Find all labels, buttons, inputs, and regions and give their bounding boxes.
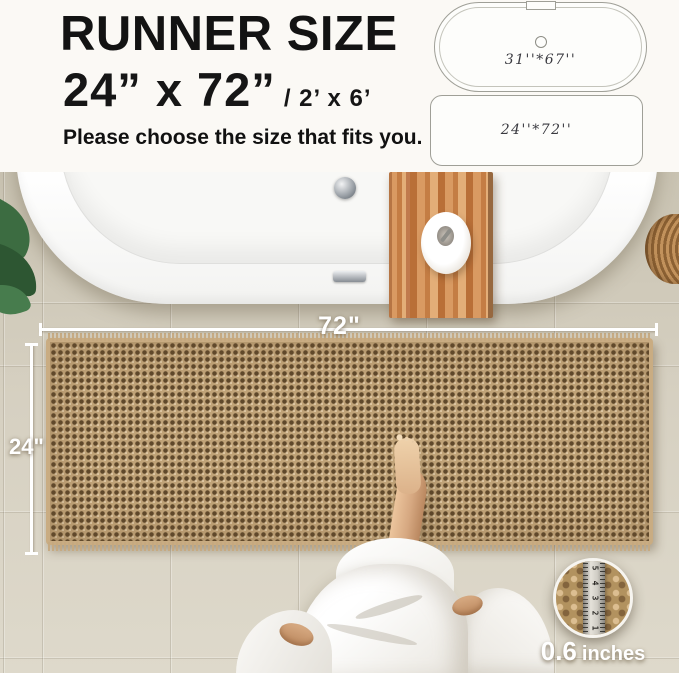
size-heading: 24” x 72”/ 2’ x 6’: [63, 62, 372, 117]
runner-size-label: 24''*72'': [431, 122, 642, 138]
toilet-paper-roll: [421, 212, 471, 274]
bathtub-size-label: 31''*67'': [435, 52, 646, 68]
ruler-number: 4: [590, 581, 598, 586]
ruler-number: 1: [590, 626, 598, 631]
product-size-image: RUNNER SIZE 24” x 72”/ 2’ x 6’ Please ch…: [0, 0, 679, 673]
ruler-number: 2: [590, 611, 598, 616]
chrome-drain-knob-icon: [334, 177, 356, 199]
width-dimension-label: 72": [0, 312, 679, 341]
ruler-numbers: 5 4 3 2 1: [583, 559, 605, 637]
ruler-number: 3: [590, 596, 598, 601]
bathtub-outline-diagram: 31''*67'': [434, 2, 647, 92]
bathroom-photo: 72" 24" 5 4 3 2 1 0.6inches: [0, 172, 679, 673]
ruler-number: 5: [590, 566, 598, 571]
size-main-text: 24” x 72”: [63, 63, 276, 116]
chrome-lever-icon: [333, 271, 366, 282]
person-foot: [394, 437, 422, 494]
drain-hole-icon: [535, 36, 547, 48]
size-alt-text: / 2’ x 6’: [284, 85, 372, 112]
bath-runner-rug: [46, 338, 653, 545]
faucet-notch-icon: [526, 1, 556, 10]
thickness-caption: 0.6inches: [535, 636, 651, 667]
thickness-value: 0.6: [541, 636, 577, 666]
height-dimension-label: 24": [9, 434, 44, 460]
page-title: RUNNER SIZE: [60, 6, 398, 62]
ruler-icon: 5 4 3 2 1: [583, 559, 605, 637]
thickness-unit: inches: [582, 643, 645, 665]
runner-outline-diagram: 24''*72'': [430, 95, 643, 166]
thickness-closeup-inset: 5 4 3 2 1: [553, 558, 633, 638]
header-section: RUNNER SIZE 24” x 72”/ 2’ x 6’ Please ch…: [0, 0, 679, 172]
size-subtitle: Please choose the size that fits you.: [63, 126, 422, 150]
